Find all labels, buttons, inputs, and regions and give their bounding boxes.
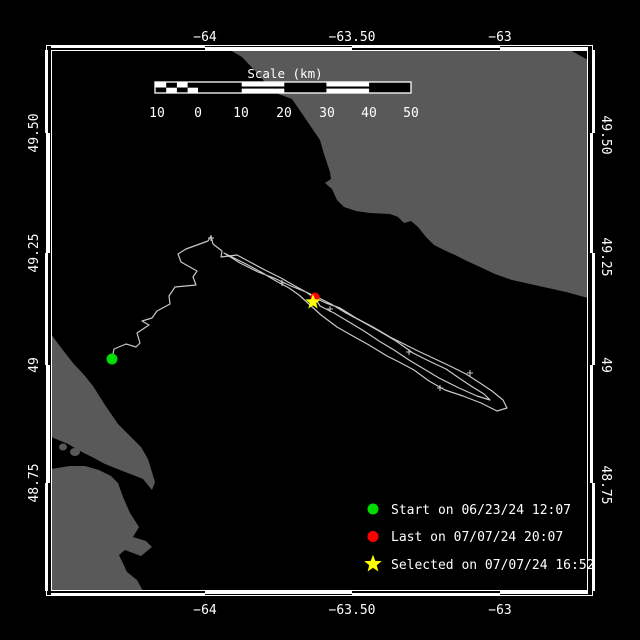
legend-start-dot-icon [368,504,379,515]
scale-tick-label: 10 [149,106,165,121]
bottom-axis-label: −63 [488,603,511,618]
legend-last-label: Last on 07/07/24 20:07 [391,530,563,545]
start-marker [107,354,118,365]
scale-tick-label: 50 [403,106,419,121]
scale-tick-label: 40 [361,106,377,121]
left-axis-label: 49.25 [27,233,42,272]
small-island [70,448,80,456]
top-axis-label: −64 [193,30,217,45]
right-axis-label: 49.25 [598,237,613,276]
scale-bar-title: Scale (km) [247,66,322,81]
top-axis-label: −63 [488,30,511,45]
legend-selected-label: Selected on 07/07/24 16:52 [391,558,595,573]
bottom-axis-label: −63.50 [329,603,376,618]
left-axis-label: 49.50 [27,113,42,152]
left-axis-label: 49 [27,357,42,373]
legend: Start on 06/23/24 12:07 Last on 07/07/24… [364,503,594,573]
map-plot: −64 −63.50 −63 −64 −63.50 −63 49.50 49.2… [0,0,640,640]
landmass-southwest [51,466,152,591]
small-island [59,444,67,451]
scale-tick-label: 30 [319,106,335,121]
left-axis-label: 48.75 [27,463,42,502]
tracking-map-screen: −64 −63.50 −63 −64 −63.50 −63 49.50 49.2… [0,0,640,640]
scale-tick-label: 10 [233,106,249,121]
right-axis-label: 49.50 [598,115,613,154]
right-axis-label: 49 [598,357,613,373]
legend-selected-star-icon [364,555,382,572]
track-line [112,236,507,411]
track-layer [107,235,508,411]
legend-last-dot-icon [368,531,379,542]
bottom-axis-label: −64 [193,603,217,618]
scale-tick-label: 20 [276,106,292,121]
legend-start-label: Start on 06/23/24 12:07 [391,503,571,518]
top-axis-label: −63.50 [329,30,376,45]
track-ticks [208,235,473,391]
right-axis-label: 48.75 [598,465,613,504]
scale-tick-label: 0 [194,106,202,121]
